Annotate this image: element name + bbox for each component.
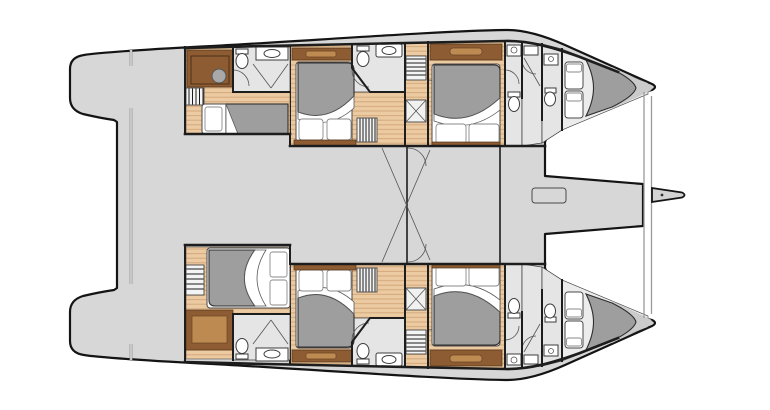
pillow [299, 119, 323, 140]
sink-counter [544, 54, 558, 65]
pillow [327, 119, 351, 140]
toilet [236, 339, 248, 354]
pillow [205, 107, 222, 131]
pillow [567, 64, 582, 72]
catamaran-floor-plan [0, 0, 770, 410]
toilet [545, 92, 556, 106]
sink [382, 47, 396, 55]
aft-port-crew-cabin [185, 46, 290, 146]
companionway-stairs [186, 88, 204, 105]
sink [264, 350, 280, 358]
bowsprit [652, 188, 685, 202]
pillow [469, 124, 499, 144]
louver-vent [357, 118, 377, 142]
cabinet [524, 46, 538, 55]
companionway-stairs [406, 56, 426, 80]
forward-crossbeam [644, 92, 652, 318]
companionway-stairs [186, 265, 204, 295]
toilet-tank [357, 46, 369, 51]
toilet [509, 97, 520, 112]
pillow [270, 252, 287, 277]
desk-chair [212, 69, 226, 83]
catamaran-floor-plan-page [0, 0, 770, 410]
bowsprit-fitting [661, 194, 664, 197]
pillow [270, 280, 287, 305]
sink [264, 50, 280, 58]
toilet [357, 52, 369, 67]
shower-room-floor [522, 42, 542, 146]
toilet-tank [236, 354, 248, 359]
wardrobe-handle [450, 48, 482, 55]
dresser-top [192, 316, 227, 343]
pillow [567, 93, 582, 101]
wardrobe-handle [306, 51, 336, 57]
toilet [236, 54, 248, 69]
pillow [436, 124, 466, 144]
aft-starboard-owner-cabin [185, 245, 290, 361]
shower-skylight [406, 100, 426, 122]
